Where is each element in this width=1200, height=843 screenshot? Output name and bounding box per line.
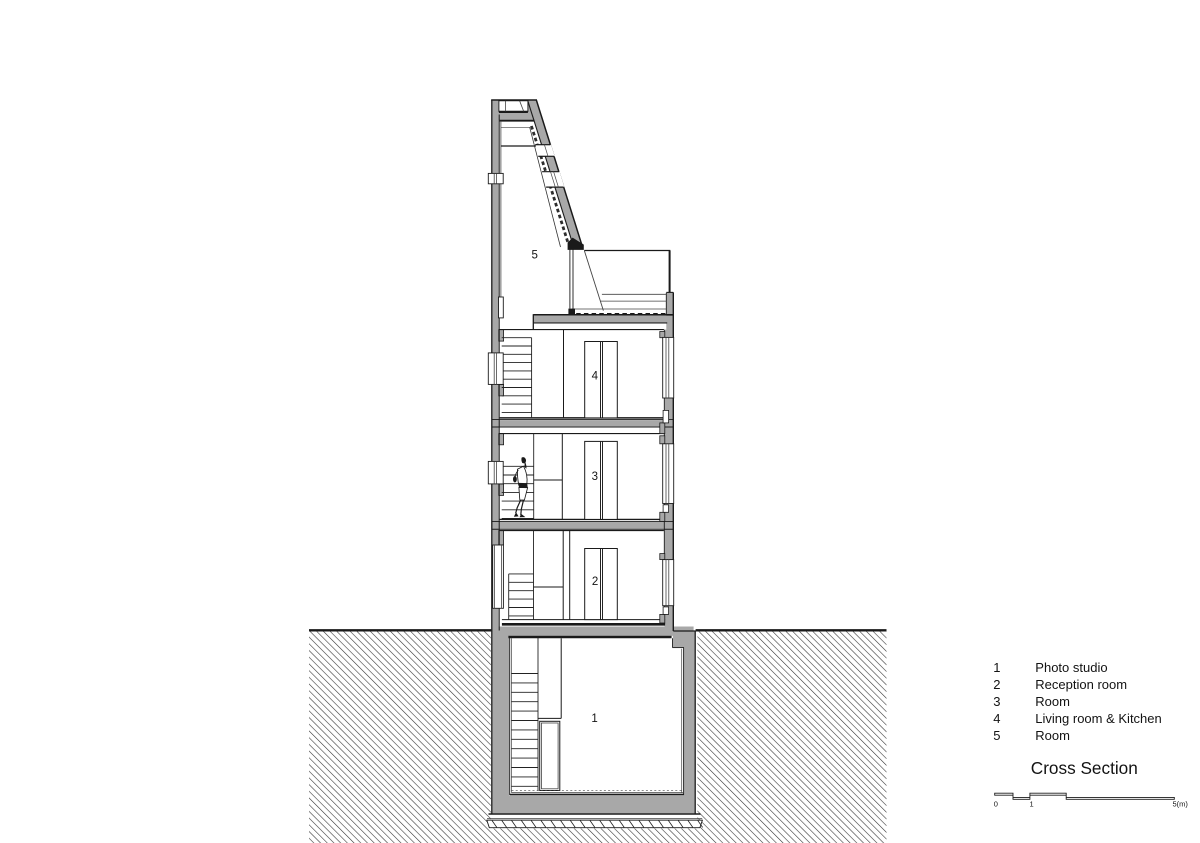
- svg-text:Reception room: Reception room: [1035, 677, 1127, 692]
- svg-text:Living room & Kitchen: Living room & Kitchen: [1035, 711, 1161, 726]
- svg-text:1: 1: [1030, 800, 1034, 809]
- svg-text:2: 2: [993, 677, 1000, 692]
- svg-text:0: 0: [994, 800, 998, 809]
- svg-text:5(m): 5(m): [1173, 800, 1189, 809]
- svg-text:Cross Section: Cross Section: [1031, 758, 1138, 778]
- svg-text:2: 2: [592, 576, 598, 588]
- svg-text:1: 1: [993, 660, 1000, 675]
- svg-text:3: 3: [993, 694, 1000, 709]
- svg-text:5: 5: [993, 728, 1000, 743]
- svg-text:Room: Room: [1035, 728, 1070, 743]
- svg-text:4: 4: [993, 711, 1000, 726]
- svg-text:3: 3: [592, 471, 598, 483]
- svg-text:4: 4: [592, 370, 599, 382]
- svg-text:1: 1: [591, 713, 597, 725]
- svg-text:Photo studio: Photo studio: [1035, 660, 1107, 675]
- svg-text:5: 5: [532, 250, 538, 262]
- svg-text:Room: Room: [1035, 694, 1070, 709]
